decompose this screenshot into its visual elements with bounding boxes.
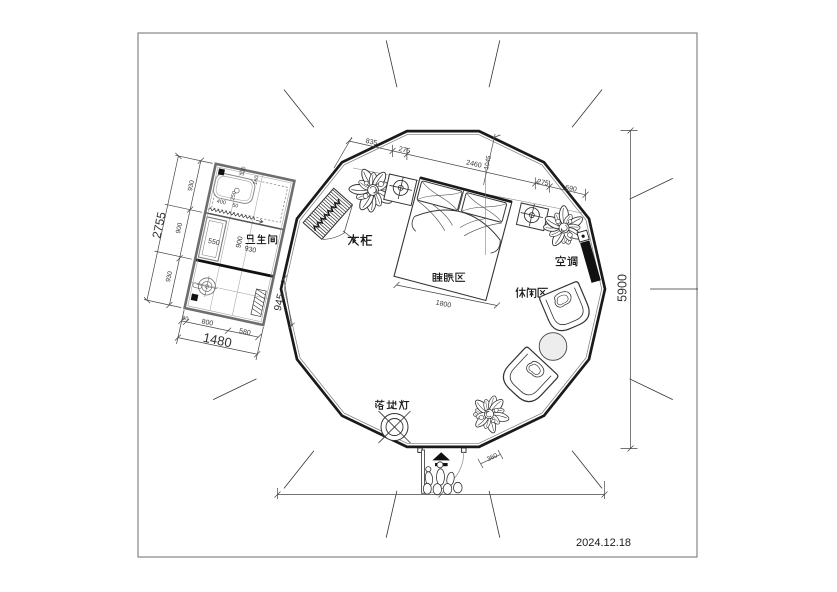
svg-text:5900: 5900 (616, 274, 630, 302)
svg-text:90: 90 (182, 315, 189, 322)
svg-text:2024.12.18: 2024.12.18 (576, 537, 631, 549)
